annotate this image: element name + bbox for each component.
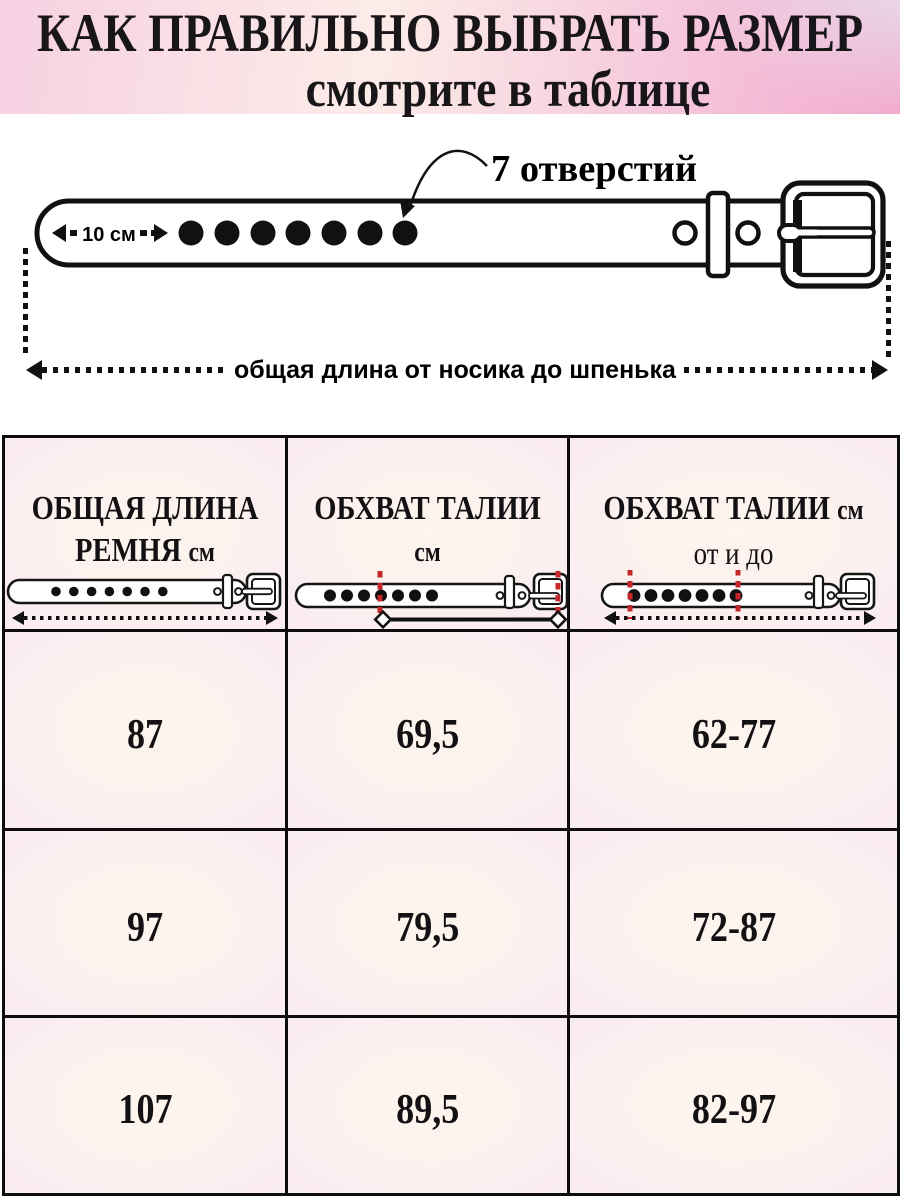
svg-text:общая длина от носика до шпень: общая длина от носика до шпенька [234,356,677,384]
svg-text:7 отверстий: 7 отверстий [491,148,697,190]
svg-text:10 см: 10 см [82,224,136,246]
